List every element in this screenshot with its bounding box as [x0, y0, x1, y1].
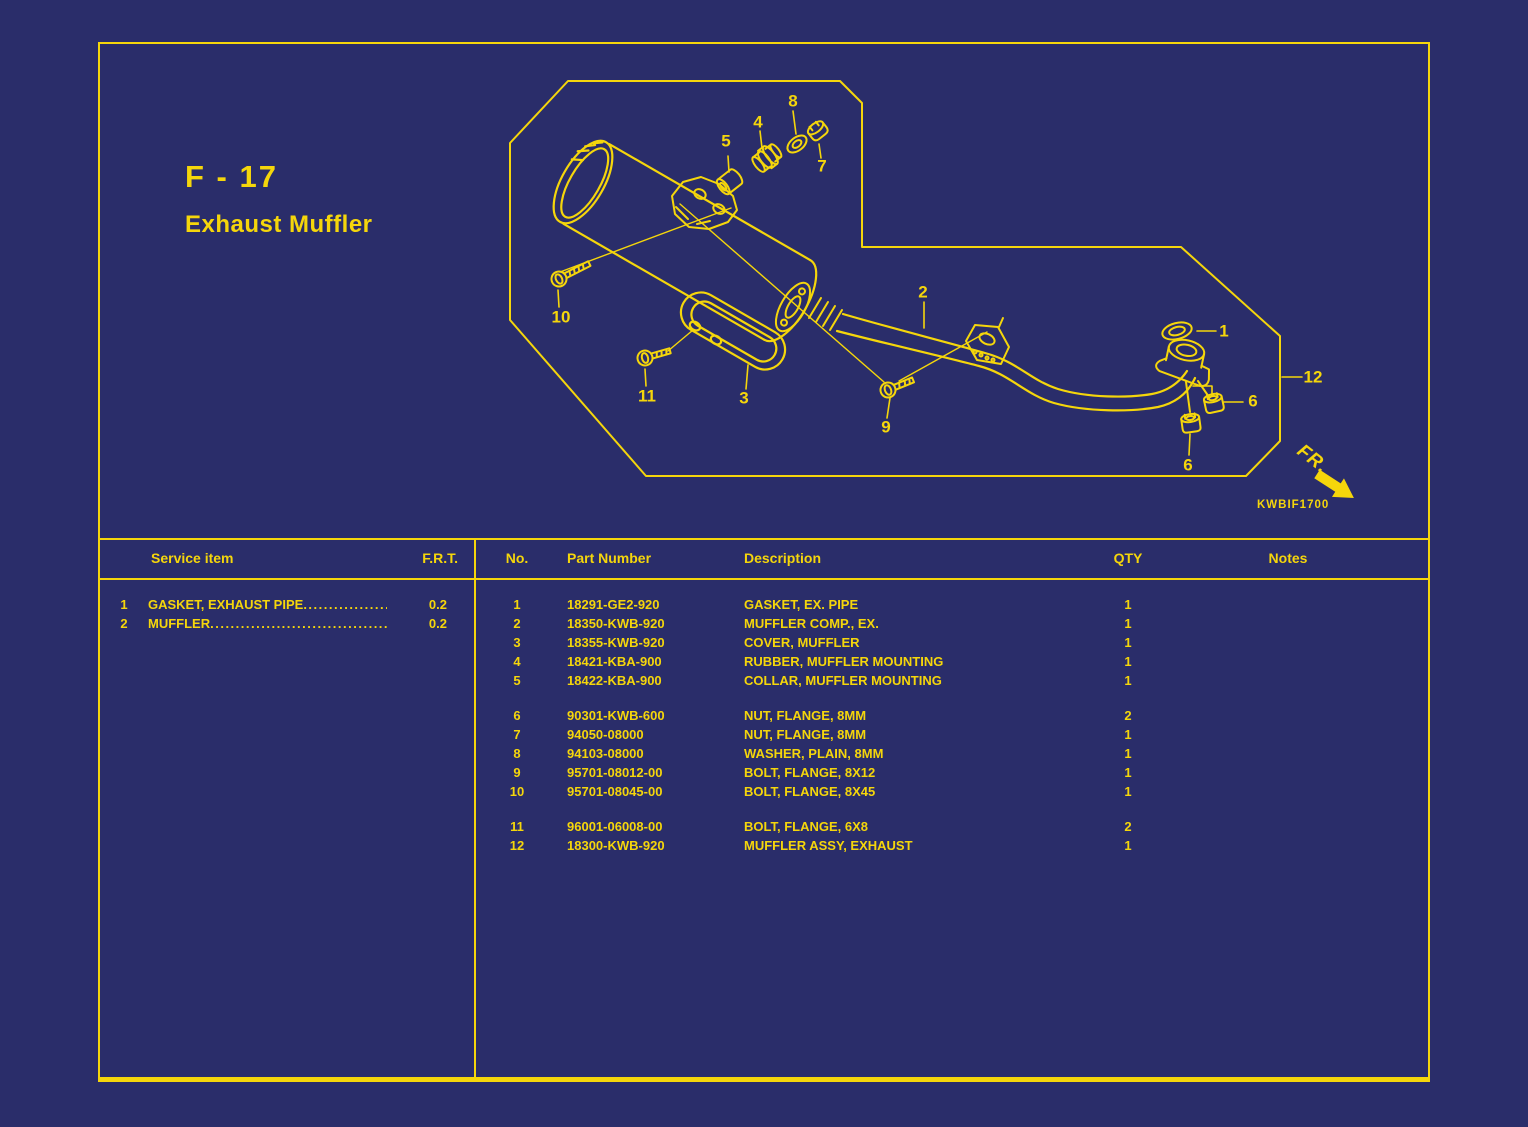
parts-row: 1218300-KWB-920MUFFLER ASSY, EXHAUST1	[476, 836, 1428, 855]
header-frt: F.R.T.	[380, 551, 458, 565]
parts-row: 418421-KBA-900RUBBER, MUFFLER MOUNTING1	[476, 652, 1428, 671]
service-item-label: GASKET, EXHAUST PIPE	[148, 595, 303, 614]
part-row-number: 12	[476, 836, 558, 855]
header-notes: Notes	[1228, 551, 1348, 565]
part-row-number: 5	[476, 671, 558, 690]
header-part-number: Part Number	[567, 551, 651, 565]
parts-row: 318355-KWB-920COVER, MUFFLER1	[476, 633, 1428, 652]
part-description: RUBBER, MUFFLER MOUNTING	[740, 652, 1046, 671]
part-description: COLLAR, MUFFLER MOUNTING	[740, 671, 1046, 690]
part-number: 95701-08012-00	[558, 763, 740, 782]
part-qty: 1	[1046, 671, 1210, 690]
header-description: Description	[744, 551, 821, 565]
service-row-number: 2	[100, 614, 148, 633]
part-qty: 1	[1046, 836, 1210, 855]
part-notes	[1210, 725, 1370, 744]
part-number: 90301-KWB-600	[558, 706, 740, 725]
diagram-callout-7: 7	[817, 158, 826, 175]
header-no: No.	[487, 551, 547, 565]
part-description: GASKET, EX. PIPE	[740, 595, 1046, 614]
pipe-bracket	[966, 318, 1009, 364]
part-qty: 1	[1046, 744, 1210, 763]
section-code: F - 17	[185, 161, 278, 192]
part-description: COVER, MUFFLER	[740, 633, 1046, 652]
parts-row: 518422-KBA-900COLLAR, MUFFLER MOUNTING1	[476, 671, 1428, 690]
part-number: 18350-KWB-920	[558, 614, 740, 633]
part-description: WASHER, PLAIN, 8MM	[740, 744, 1046, 763]
part-notes	[1210, 817, 1370, 836]
service-row: 1GASKET, EXHAUST PIPE...................…	[100, 595, 475, 614]
diagram-callout-1: 1	[1219, 323, 1228, 340]
part-description: BOLT, FLANGE, 8X45	[740, 782, 1046, 801]
diagram-callout-3: 3	[739, 390, 748, 407]
parts-table: 118291-GE2-920GASKET, EX. PIPE1218350-KW…	[476, 595, 1428, 855]
parts-row: 995701-08012-00BOLT, FLANGE, 8X121	[476, 763, 1428, 782]
part-qty: 2	[1046, 817, 1210, 836]
part-row-number: 1	[476, 595, 558, 614]
part-qty: 1	[1046, 782, 1210, 801]
muffler-inlet-joint	[769, 278, 842, 337]
header-qty: QTY	[1068, 551, 1188, 565]
part-qty: 1	[1046, 652, 1210, 671]
service-item-label: MUFFLER	[148, 614, 210, 633]
part-number: 96001-06008-00	[558, 817, 740, 836]
part-row-number: 7	[476, 725, 558, 744]
flange-nut-bottom	[1181, 413, 1201, 433]
part-row-number: 8	[476, 744, 558, 763]
part-qty: 1	[1046, 633, 1210, 652]
nut-part	[806, 119, 830, 142]
parts-row: 894103-08000WASHER, PLAIN, 8MM1	[476, 744, 1428, 763]
gasket-part	[1161, 320, 1194, 343]
part-number: 94050-08000	[558, 725, 740, 744]
service-frt-value: 0.2	[391, 614, 475, 633]
parts-row: 794050-08000NUT, FLANGE, 8MM1	[476, 725, 1428, 744]
part-notes	[1210, 836, 1370, 855]
part-description: MUFFLER COMP., EX.	[740, 614, 1046, 633]
part-notes	[1210, 706, 1370, 725]
diagram-callout-9: 9	[881, 419, 890, 436]
part-description: BOLT, FLANGE, 6X8	[740, 817, 1046, 836]
part-notes	[1210, 595, 1370, 614]
table-grid-line	[100, 578, 1430, 580]
part-number: 18291-GE2-920	[558, 595, 740, 614]
part-description: BOLT, FLANGE, 8X12	[740, 763, 1046, 782]
part-notes	[1210, 614, 1370, 633]
table-grid-line	[100, 538, 1430, 540]
part-description: MUFFLER ASSY, EXHAUST	[740, 836, 1046, 855]
part-row-number: 10	[476, 782, 558, 801]
parts-row: 1196001-06008-00BOLT, FLANGE, 6X82	[476, 817, 1428, 836]
part-row-number: 6	[476, 706, 558, 725]
part-number: 18355-KWB-920	[558, 633, 740, 652]
parts-row: 218350-KWB-920MUFFLER COMP., EX.1	[476, 614, 1428, 633]
part-notes	[1210, 744, 1370, 763]
service-row: 2MUFFLER................................…	[100, 614, 475, 633]
part-number: 94103-08000	[558, 744, 740, 763]
service-frt-value: 0.2	[391, 595, 475, 614]
service-item-cell: GASKET, EXHAUST PIPE....................…	[148, 595, 391, 614]
washer-part	[784, 132, 809, 156]
muffler-body	[542, 132, 828, 350]
part-description: NUT, FLANGE, 8MM	[740, 725, 1046, 744]
part-row-number: 9	[476, 763, 558, 782]
rubber-mount-part	[749, 140, 785, 175]
part-row-number: 11	[476, 817, 558, 836]
part-qty: 1	[1046, 595, 1210, 614]
part-notes	[1210, 652, 1370, 671]
dot-leader: ........................................…	[210, 614, 387, 633]
part-number: 18300-KWB-920	[558, 836, 740, 855]
service-table: 1GASKET, EXHAUST PIPE...................…	[100, 595, 475, 633]
drawing-code: KWBIF1700	[1257, 499, 1329, 511]
parts-group: 1196001-06008-00BOLT, FLANGE, 6X82121830…	[476, 817, 1428, 855]
diagram-callout-2: 2	[918, 284, 927, 301]
part-notes	[1210, 633, 1370, 652]
part-number: 18421-KBA-900	[558, 652, 740, 671]
diagram-callout-5: 5	[721, 133, 730, 150]
exhaust-pipe	[837, 314, 1195, 410]
service-item-cell: MUFFLER.................................…	[148, 614, 391, 633]
diagram-callout-6: 6	[1183, 457, 1192, 474]
parts-group: 690301-KWB-600NUT, FLANGE, 8MM2794050-08…	[476, 706, 1428, 801]
part-row-number: 2	[476, 614, 558, 633]
part-notes	[1210, 763, 1370, 782]
part-qty: 1	[1046, 725, 1210, 744]
diagram-callout-12: 12	[1304, 369, 1323, 386]
part-row-number: 4	[476, 652, 558, 671]
diagram-outline	[510, 81, 1280, 476]
part-number: 18422-KBA-900	[558, 671, 740, 690]
header-service-item: Service item	[151, 551, 234, 565]
diagram-callout-4: 4	[753, 114, 762, 131]
parts-fiche-page: FR. 1234566789101112 F - 17 Exhaust Muff…	[0, 0, 1528, 1127]
diagram-callout-6: 6	[1248, 393, 1257, 410]
diagram-callout-11: 11	[638, 388, 656, 405]
bolt-11	[636, 344, 672, 368]
bolt-9	[878, 373, 916, 400]
page-title: Exhaust Muffler	[185, 213, 373, 237]
dot-leader: ........................................…	[303, 595, 387, 614]
parts-group: 118291-GE2-920GASKET, EX. PIPE1218350-KW…	[476, 595, 1428, 690]
part-row-number: 3	[476, 633, 558, 652]
part-notes	[1210, 782, 1370, 801]
part-notes	[1210, 671, 1370, 690]
parts-row: 118291-GE2-920GASKET, EX. PIPE1	[476, 595, 1428, 614]
service-row-number: 1	[100, 595, 148, 614]
diagram-callout-8: 8	[788, 93, 797, 110]
fr-direction-label: FR.	[1293, 440, 1332, 477]
diagram-callout-10: 10	[552, 309, 571, 326]
part-qty: 1	[1046, 614, 1210, 633]
flange-nut-right	[1203, 392, 1224, 413]
callout-ticks	[558, 111, 1302, 455]
parts-row: 1095701-08045-00BOLT, FLANGE, 8X451	[476, 782, 1428, 801]
parts-row: 690301-KWB-600NUT, FLANGE, 8MM2	[476, 706, 1428, 725]
part-number: 95701-08045-00	[558, 782, 740, 801]
part-description: NUT, FLANGE, 8MM	[740, 706, 1046, 725]
part-qty: 2	[1046, 706, 1210, 725]
part-qty: 1	[1046, 763, 1210, 782]
